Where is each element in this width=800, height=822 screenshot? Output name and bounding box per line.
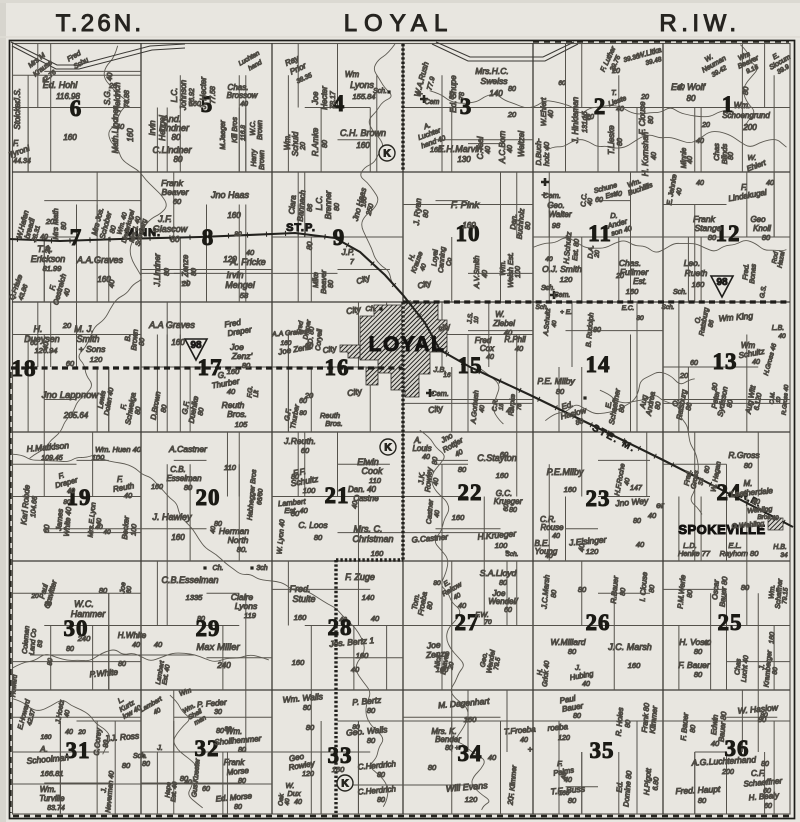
svg-text:44.34: 44.34: [13, 158, 31, 165]
svg-text:Sch.: Sch.: [505, 551, 518, 558]
svg-text:80: 80: [234, 231, 242, 238]
svg-text:E.C.: E.C.: [622, 305, 635, 312]
svg-text:Wm.: Wm.: [734, 101, 750, 110]
svg-text:16: 16: [325, 355, 350, 380]
svg-text:77.58: 77.58: [210, 86, 217, 104]
svg-text:40: 40: [696, 138, 704, 145]
svg-text:160: 160: [371, 549, 384, 558]
svg-text:Bros.: Bros.: [325, 419, 343, 428]
svg-text:80: 80: [508, 86, 516, 93]
svg-text:34: 34: [458, 741, 483, 766]
svg-text:40: 40: [587, 198, 595, 206]
svg-text:80: 80: [744, 461, 753, 470]
svg-text:J.: J.: [156, 745, 163, 752]
svg-text:40: 40: [458, 601, 467, 610]
svg-text:22: 22: [458, 480, 483, 505]
svg-text:80: 80: [191, 268, 198, 276]
svg-text:40: 40: [67, 488, 75, 495]
svg-text:60: 60: [126, 586, 134, 594]
svg-text:40: 40: [294, 799, 302, 806]
svg-text:160: 160: [692, 280, 705, 289]
svg-text:31: 31: [66, 738, 91, 763]
svg-text:Joe: Joe: [311, 91, 320, 105]
svg-text:Lyons: Lyons: [350, 80, 374, 90]
svg-text:160: 160: [464, 715, 477, 724]
svg-text:Wm: Wm: [345, 70, 360, 79]
svg-text:98: 98: [190, 340, 202, 351]
svg-text:40: 40: [488, 753, 497, 762]
svg-text:Ed. Hohl: Ed. Hohl: [43, 80, 79, 90]
svg-text:Max Miller: Max Miller: [196, 642, 240, 653]
svg-text:80: 80: [617, 138, 624, 146]
svg-text:R.Phil: R.Phil: [504, 335, 526, 344]
svg-text:Lindner: Lindner: [159, 123, 190, 133]
svg-text:40: 40: [696, 180, 704, 187]
svg-text:H.: H.: [34, 324, 43, 334]
svg-text:30: 30: [214, 709, 222, 716]
svg-text:40: 40: [752, 359, 760, 366]
svg-text:86: 86: [685, 402, 693, 411]
svg-text:10: 10: [474, 316, 481, 324]
svg-text:80: 80: [334, 203, 341, 211]
svg-text:29: 29: [196, 616, 221, 641]
svg-text:Smith: Smith: [76, 334, 99, 344]
svg-text:147: 147: [630, 485, 643, 492]
svg-text:80: 80: [171, 235, 180, 244]
svg-text:80: 80: [649, 585, 657, 593]
svg-text:Jno Lappnow: Jno Lappnow: [41, 390, 100, 401]
svg-text:Christman: Christman: [352, 534, 393, 544]
svg-text:Brossow: Brossow: [227, 91, 259, 100]
svg-text:140: 140: [489, 89, 503, 98]
svg-text:160: 160: [769, 632, 777, 644]
svg-text:40: 40: [65, 729, 73, 736]
svg-text:23: 23: [586, 486, 611, 511]
svg-text:Brown: Brown: [257, 120, 264, 140]
svg-text:40: 40: [636, 540, 645, 549]
svg-text:Irvin: Irvin: [226, 270, 243, 280]
svg-text:40: 40: [434, 510, 442, 518]
svg-text:F. Pink: F. Pink: [451, 200, 481, 211]
svg-text:1335: 1335: [186, 593, 204, 602]
svg-text:60: 60: [301, 446, 310, 455]
svg-text:Esselman: Esselman: [166, 474, 202, 483]
svg-text:40: 40: [285, 798, 292, 806]
svg-text:Sch.: Sch.: [541, 285, 555, 292]
svg-text:160: 160: [171, 338, 185, 347]
svg-text:40: 40: [105, 71, 115, 81]
svg-text:F. Clouse: F. Clouse: [638, 101, 647, 135]
svg-text:C.Teal: C.Teal: [476, 136, 485, 159]
svg-text:T.: T.: [611, 90, 617, 97]
svg-text:80: 80: [712, 383, 720, 391]
svg-text:J. Hinklaman: J. Hinklaman: [571, 96, 580, 144]
svg-text:6.80: 6.80: [652, 777, 660, 791]
svg-text:80: 80: [139, 338, 147, 346]
svg-text:+: +: [417, 89, 422, 99]
svg-text:9: 9: [333, 225, 346, 250]
svg-text:40: 40: [545, 256, 553, 263]
svg-text:W.: W.: [495, 310, 504, 319]
svg-text:Bros: Bros: [757, 514, 771, 521]
svg-text:W.C.: W.C.: [250, 120, 257, 135]
svg-text:60: 60: [595, 197, 603, 204]
svg-text:R.Gross: R.Gross: [728, 450, 760, 460]
svg-text:100: 100: [515, 266, 522, 278]
svg-text:40: 40: [96, 518, 104, 526]
svg-text:80: 80: [525, 222, 533, 230]
svg-text:Co: Co: [446, 257, 454, 266]
svg-text:80: 80: [568, 647, 577, 656]
svg-text:H. Kornshah: H. Kornshah: [641, 131, 650, 176]
svg-text:66/60: 66/60: [256, 488, 264, 505]
svg-text:240: 240: [77, 634, 91, 643]
svg-text:Stulte: Stulte: [292, 594, 315, 604]
svg-text:C.F.: C.F.: [751, 769, 765, 778]
svg-text:80: 80: [180, 774, 189, 783]
svg-text:116.98: 116.98: [56, 92, 80, 101]
svg-text:North: North: [228, 535, 249, 545]
svg-text:Bros.: Bros.: [227, 409, 247, 419]
svg-text:T.Lieske: T.Lieske: [607, 125, 616, 155]
svg-text:80: 80: [99, 586, 108, 595]
svg-text:80: 80: [741, 583, 750, 592]
svg-text:80: 80: [687, 94, 696, 103]
svg-text:80: 80: [134, 406, 142, 415]
svg-text:80: 80: [328, 280, 335, 288]
svg-text:40: 40: [564, 777, 572, 784]
svg-text:Sch.: Sch.: [661, 304, 674, 311]
svg-text:80: 80: [687, 590, 695, 598]
svg-text:LOYAL: LOYAL: [344, 10, 455, 37]
svg-text:W.Ehlert: W.Ehlert: [539, 97, 548, 126]
svg-text:80: 80: [216, 728, 224, 735]
svg-text:C.B.Esselman: C.B.Esselman: [161, 575, 218, 585]
svg-text:Brown: Brown: [259, 150, 266, 170]
svg-text:80: 80: [184, 483, 193, 492]
svg-text:160: 160: [356, 141, 370, 150]
svg-text:40: 40: [132, 642, 140, 649]
svg-text:70: 70: [484, 619, 492, 626]
svg-text:80: 80: [118, 661, 126, 668]
svg-text:80: 80: [238, 747, 246, 754]
svg-text:40: 40: [552, 533, 560, 540]
svg-text:H.White: H.White: [118, 631, 147, 640]
svg-text:Welsh Est.: Welsh Est.: [506, 252, 515, 288]
svg-text:60: 60: [173, 197, 182, 206]
svg-text:160: 160: [97, 275, 111, 284]
svg-text:80: 80: [654, 401, 662, 410]
svg-text:120: 120: [90, 355, 103, 364]
svg-text:83: 83: [37, 640, 45, 648]
svg-text:Mrs Math: Mrs Math: [51, 208, 60, 239]
svg-text:100: 100: [495, 541, 508, 550]
svg-text:Schuld: Schuld: [291, 131, 300, 156]
svg-text:40: 40: [124, 491, 133, 500]
svg-text:F. Bauer: F. Bauer: [678, 660, 711, 670]
svg-text:98: 98: [716, 277, 728, 288]
svg-text:Stange: Stange: [695, 223, 722, 233]
svg-text:60: 60: [558, 80, 566, 87]
svg-text:80.: 80.: [237, 545, 247, 554]
svg-text:240: 240: [216, 661, 231, 670]
svg-text:3ch: 3ch: [256, 565, 267, 572]
svg-text:80: 80: [164, 268, 171, 276]
svg-text:40: 40: [351, 665, 360, 674]
svg-text:80: 80: [556, 387, 565, 396]
svg-text:Dux: Dux: [287, 789, 301, 798]
svg-text:Wm. Huen 40: Wm. Huen 40: [95, 445, 142, 454]
svg-text:Mrs. C.: Mrs. C.: [354, 524, 383, 534]
svg-text:Bender: Bender: [435, 735, 461, 744]
svg-text:40: 40: [479, 405, 487, 413]
svg-text:80: 80: [299, 410, 307, 417]
svg-text:120: 120: [558, 735, 570, 742]
svg-text:80: 80: [367, 706, 376, 715]
svg-text:Kill Bros: Kill Bros: [232, 117, 239, 143]
svg-text:+: +: [528, 745, 533, 754]
svg-text:Sch.: Sch.: [373, 88, 387, 95]
svg-text:80: 80: [509, 507, 517, 514]
svg-text:S.G.: S.G.: [103, 89, 112, 105]
svg-text:83.74: 83.74: [47, 805, 65, 812]
svg-text:86: 86: [307, 204, 315, 212]
svg-text:160: 160: [126, 128, 135, 142]
svg-text:160: 160: [356, 651, 369, 660]
svg-text:80: 80: [625, 720, 633, 728]
svg-text:7: 7: [70, 225, 83, 250]
svg-text:120: 120: [586, 547, 599, 556]
svg-text:40: 40: [482, 270, 489, 278]
svg-text:Stoicker: Stoicker: [13, 100, 22, 129]
svg-text:Erickson: Erickson: [31, 254, 66, 264]
svg-text:80: 80: [633, 518, 641, 525]
svg-text:Ziebel: Ziebel: [492, 319, 515, 328]
svg-text:J.Reuth.: J.Reuth.: [283, 436, 316, 446]
svg-text:160: 160: [281, 340, 292, 347]
svg-text:A.: A.: [39, 744, 48, 754]
svg-text:R.Amke: R.Amke: [311, 127, 320, 156]
svg-text:Glascow: Glascow: [153, 224, 188, 234]
svg-text:Est.: Est.: [633, 277, 647, 286]
svg-text:160: 160: [452, 513, 465, 522]
svg-text:Cem: Cem: [425, 99, 440, 106]
svg-text:40: 40: [507, 145, 514, 153]
svg-text:er: er: [656, 500, 665, 510]
svg-text:34: 34: [780, 552, 788, 559]
svg-text:Wm.: Wm.: [226, 727, 242, 736]
svg-text:S.A.Lloyd: S.A.Lloyd: [480, 568, 517, 578]
svg-text:Mrs.H.C.: Mrs.H.C.: [475, 66, 509, 76]
svg-text:80: 80: [618, 404, 626, 413]
svg-text:80: 80: [142, 761, 150, 768]
svg-text:76.92: 76.92: [189, 88, 196, 106]
svg-text:40: 40: [582, 681, 590, 688]
svg-text:40: 40: [687, 156, 694, 164]
svg-text:20: 20: [507, 110, 517, 119]
svg-text:C.B.: C.B.: [170, 465, 186, 474]
svg-text:79.15: 79.15: [781, 587, 789, 604]
svg-text:P.E.Milby: P.E.Milby: [547, 467, 584, 477]
svg-text:Leo.: Leo.: [684, 258, 701, 268]
svg-text:205.64: 205.64: [63, 411, 89, 420]
svg-text:80: 80: [620, 588, 628, 596]
svg-text:holz 40: holz 40: [542, 141, 551, 166]
svg-text:166.81: 166.81: [41, 769, 64, 778]
svg-text:Lyons: Lyons: [235, 601, 258, 611]
svg-text:60: 60: [690, 360, 698, 367]
svg-text:P.E. Milby: P.E. Milby: [537, 376, 575, 386]
svg-text:160: 160: [227, 211, 241, 220]
svg-text:T.A.: T.A.: [37, 244, 53, 254]
svg-text:T.26N.: T.26N.: [56, 10, 145, 37]
svg-text:80: 80: [433, 580, 441, 587]
svg-text:Castne: Castne: [353, 494, 379, 503]
svg-text:119: 119: [244, 611, 257, 620]
svg-text:Zenz': Zenz': [231, 351, 253, 361]
svg-text:H. Voss: H. Voss: [679, 637, 709, 647]
svg-text:L.C.: L.C.: [170, 88, 179, 103]
svg-text:60: 60: [66, 359, 75, 368]
svg-text:80: 80: [305, 240, 315, 250]
svg-text:100: 100: [92, 453, 105, 462]
svg-text:80: 80: [741, 85, 751, 95]
svg-text:M.: M.: [744, 479, 753, 488]
svg-text:80: 80: [726, 399, 734, 408]
svg-text:80: 80: [426, 601, 434, 610]
svg-text:126.94: 126.94: [35, 346, 58, 355]
svg-text:160: 160: [294, 613, 307, 622]
svg-text:Fullmer: Fullmer: [620, 267, 650, 277]
svg-text:20: 20: [679, 371, 689, 380]
svg-text:Cem.: Cem.: [431, 389, 449, 398]
svg-text:Sch.: Sch.: [673, 289, 687, 296]
svg-text:80: 80: [66, 646, 74, 653]
svg-text:13: 13: [713, 349, 738, 374]
svg-text:C. Loos: C. Loos: [298, 520, 328, 530]
svg-text:40: 40: [40, 234, 48, 241]
svg-text:80: 80: [303, 703, 312, 712]
svg-text:L.B.: L.B.: [772, 325, 785, 332]
svg-text:Krueger: Krueger: [494, 497, 523, 506]
svg-text:Louis: Louis: [412, 444, 431, 453]
svg-text:80: 80: [122, 761, 131, 770]
svg-text:20: 20: [701, 122, 710, 129]
svg-text:20: 20: [640, 94, 649, 101]
svg-text:Walter: Walter: [549, 210, 572, 219]
svg-text:80: 80: [458, 465, 467, 474]
svg-text:100: 100: [131, 524, 139, 536]
svg-text:35: 35: [590, 738, 615, 763]
svg-text:98: 98: [552, 221, 561, 230]
svg-text:Weitzel: Weitzel: [517, 131, 526, 157]
svg-text:28: 28: [328, 615, 353, 640]
svg-text:J.Lindner: J.Lindner: [153, 253, 162, 287]
svg-text:80: 80: [197, 407, 205, 416]
svg-text:33: 33: [328, 743, 353, 768]
svg-text:40: 40: [648, 511, 657, 520]
svg-text:40: 40: [154, 640, 163, 649]
svg-text:80: 80: [694, 670, 703, 679]
svg-text:L.C.: L.C.: [315, 196, 324, 211]
svg-text:60: 60: [504, 607, 512, 614]
svg-text:20: 20: [196, 485, 221, 510]
svg-text:K: K: [341, 779, 349, 790]
svg-text:K: K: [383, 149, 391, 160]
svg-text:80: 80: [499, 580, 507, 587]
svg-text:80: 80: [708, 233, 717, 242]
svg-text:80: 80: [423, 210, 431, 218]
svg-text:40: 40: [103, 529, 111, 536]
svg-text:H.B.: H.B.: [773, 544, 787, 551]
svg-text:roeba: roeba: [547, 722, 569, 733]
svg-text:76.88: 76.88: [124, 90, 131, 108]
svg-text:Ed. Wolf: Ed. Wolf: [671, 82, 707, 92]
svg-text:80: 80: [306, 723, 315, 732]
svg-text:Cook: Cook: [361, 466, 383, 476]
svg-text:80: 80: [367, 736, 376, 745]
svg-text:Knoll: Knoll: [753, 224, 771, 233]
svg-text:40: 40: [371, 614, 380, 623]
svg-text:16: 16: [443, 372, 451, 379]
svg-text:80: 80: [551, 590, 559, 598]
svg-text:A.V.Smith: A.V.Smith: [472, 256, 481, 290]
svg-text:116.8: 116.8: [240, 125, 247, 141]
svg-text:80: 80: [761, 761, 769, 768]
svg-text:J.P.: J.P.: [341, 248, 355, 257]
svg-text:120: 120: [223, 255, 237, 264]
svg-text:40: 40: [433, 478, 441, 486]
svg-text:J.F.: J.F.: [157, 214, 172, 224]
svg-text:Mengel: Mengel: [225, 280, 256, 290]
svg-text:110: 110: [224, 463, 237, 472]
svg-text:160: 160: [496, 471, 509, 480]
svg-text:110: 110: [369, 476, 382, 485]
svg-text:130: 130: [457, 155, 471, 164]
svg-text:80: 80: [428, 763, 437, 772]
svg-text:160: 160: [151, 484, 163, 491]
svg-text:80: 80: [314, 533, 323, 542]
svg-text:A.C.Born: A.C.Born: [498, 130, 507, 164]
svg-text:80: 80: [578, 585, 587, 594]
svg-text:15: 15: [458, 353, 483, 378]
svg-text:80: 80: [568, 796, 577, 805]
svg-text:M. J.: M. J.: [74, 324, 94, 334]
svg-text:18: 18: [12, 356, 37, 381]
svg-text:J. Hecter: J. Hecter: [199, 77, 208, 110]
svg-text:Fred.: Fred.: [289, 584, 310, 594]
svg-text:80 +: 80 +: [445, 745, 459, 752]
svg-text:+: +: [541, 190, 546, 200]
svg-text:Sch.: Sch.: [133, 753, 147, 760]
svg-text:80: 80: [752, 499, 760, 506]
svg-text:Ch.: Ch.: [213, 565, 224, 572]
svg-text:80: 80: [160, 404, 168, 413]
svg-text:K: K: [384, 443, 392, 454]
svg-text:80: 80: [172, 133, 181, 142]
svg-text:+ Sons: + Sons: [79, 344, 106, 354]
svg-text:R.IW.: R.IW.: [659, 10, 740, 37]
svg-text:Johnson: Johnson: [179, 79, 188, 111]
svg-text:20: 20: [594, 250, 602, 259]
svg-text:100: 100: [303, 486, 316, 495]
svg-text:20: 20: [77, 729, 86, 736]
svg-text:80: 80: [377, 797, 385, 804]
svg-text:J. Zenze: J. Zenze: [181, 254, 190, 286]
svg-text:80: 80: [636, 315, 644, 322]
svg-text:160: 160: [462, 221, 476, 230]
svg-text:80: 80: [242, 361, 251, 370]
